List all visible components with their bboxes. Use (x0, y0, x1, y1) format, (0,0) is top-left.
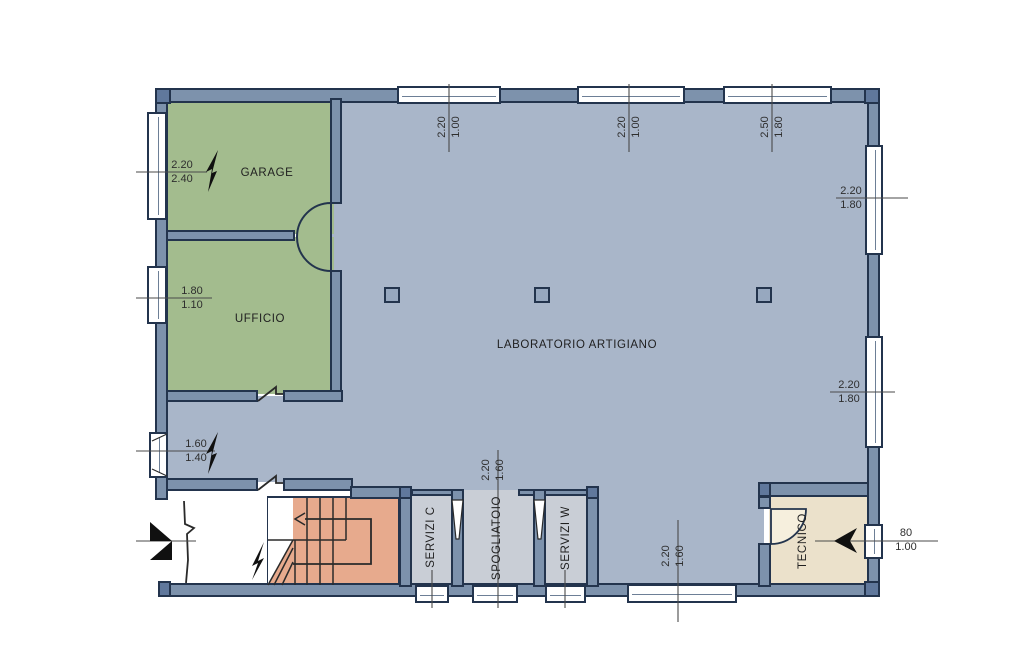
stairs-floor (267, 496, 400, 587)
garage-window (147, 112, 167, 220)
dim-right-window-1: 2.20 1.80 (838, 184, 863, 212)
laboratorio-floor-bottom-strip (594, 478, 764, 588)
column-3 (756, 287, 772, 303)
tecnico-left-wall-lower (758, 543, 771, 587)
servizi-w-right-wall (586, 486, 599, 587)
dim-top-window-3: 2.50 1.80 (758, 114, 786, 139)
dim-lab-side-door: 1.60 1.40 (183, 437, 208, 465)
dim-top-window-1: 2.20 1.00 (435, 114, 463, 139)
corner-block-stairs (399, 486, 412, 499)
corner-block-tecnico (758, 482, 771, 497)
floor-plan: GARAGE UFFICIO LABORATORIO ARTIGIANO SER… (0, 0, 1024, 669)
servizi-w-label: SERVIZI W (560, 506, 572, 570)
tecnico-floor (769, 495, 869, 587)
right-window-1 (865, 145, 883, 255)
garage-ufficio-divider (166, 230, 295, 241)
dim-top-window-2: 2.20 1.00 (615, 114, 643, 139)
column-1 (384, 287, 400, 303)
top-window-3 (723, 86, 832, 104)
garage-label: GARAGE (241, 167, 294, 179)
laboratorio-label: LABORATORIO ARTIGIANO (497, 339, 657, 351)
corner-block-bottom-left (158, 581, 171, 597)
outer-wall-bottom (158, 583, 880, 597)
garage-lab-wall-lower (330, 270, 342, 402)
dim-garage-window: 2.20 2.40 (169, 158, 194, 186)
dim-ufficio-window: 1.80 1.10 (179, 284, 204, 312)
ufficio-window (147, 266, 167, 324)
vestibule-floor (166, 490, 269, 586)
ufficio-bottom-wall-b (283, 390, 343, 402)
lab-vestibule-wall-a (166, 478, 258, 491)
tecnico-left-wall-upper (758, 496, 771, 509)
spogliatoio-label: SPOGLIATOIO (491, 496, 503, 580)
tecnico-vent-window (864, 524, 883, 559)
ufficio-bottom-wall-a (166, 390, 258, 402)
servizi-w-window (545, 585, 586, 603)
garage-lab-wall-upper (330, 98, 342, 204)
stairs-right-wall (399, 486, 412, 587)
spogliatoio-window (472, 585, 518, 603)
dim-bottom-window: 2.20 1.60 (659, 543, 687, 568)
divider-spogliatoio-w (533, 489, 546, 587)
tecnico-label: TECNICO (797, 513, 809, 569)
bottom-big-window (627, 584, 737, 603)
top-window-2 (577, 86, 685, 104)
right-window-2 (865, 336, 883, 448)
dim-right-window-2: 2.20 1.80 (836, 378, 861, 406)
lab-side-door-opening (149, 432, 168, 478)
ufficio-label: UFFICIO (235, 313, 285, 325)
corner-block-top-left (155, 88, 171, 104)
corner-block-servizi-w (586, 486, 599, 499)
divider-c-spogliatoio (451, 489, 464, 587)
servizi-c-label: SERVIZI C (425, 506, 437, 567)
laboratorio-floor (332, 98, 869, 490)
corner-block-top-right (864, 88, 880, 104)
dim-tecnico-vent: 80 1.00 (893, 526, 918, 554)
servizi-c-window (415, 585, 449, 603)
corner-block-bottom-right (864, 581, 880, 597)
dim-spogliatoio-opening: 2.20 1.60 (479, 457, 507, 482)
column-2 (534, 287, 550, 303)
top-window-1 (397, 86, 501, 104)
lab-vestibule-wall-b (283, 478, 353, 491)
tecnico-top-wall (758, 482, 869, 497)
